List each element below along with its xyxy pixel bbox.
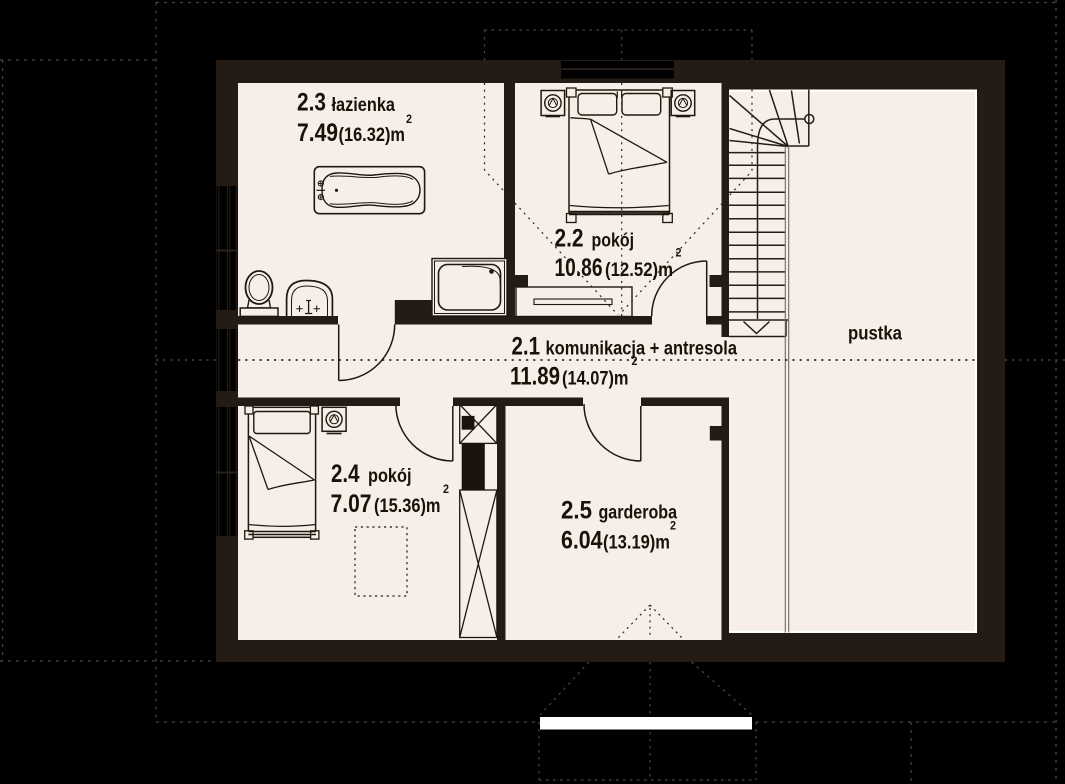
- svg-text:łazienka: łazienka: [332, 95, 396, 116]
- svg-text:2.4: 2.4: [331, 460, 360, 488]
- svg-text:pokój: pokój: [592, 231, 635, 252]
- svg-text:7.07: 7.07: [331, 490, 372, 518]
- svg-text:(15.36)m: (15.36)m: [374, 496, 441, 517]
- svg-text:2: 2: [632, 354, 638, 368]
- svg-text:2.1: 2.1: [512, 333, 541, 361]
- svg-text:7.49: 7.49: [297, 119, 338, 147]
- svg-text:2.2: 2.2: [555, 225, 584, 253]
- svg-text:2: 2: [676, 246, 682, 260]
- svg-text:11.89: 11.89: [510, 363, 560, 391]
- svg-text:komunikacja + antresola: komunikacja + antresola: [546, 339, 738, 360]
- svg-text:2: 2: [443, 482, 449, 496]
- svg-text:2.5: 2.5: [561, 497, 592, 525]
- svg-text:(14.07)m: (14.07)m: [562, 369, 629, 390]
- svg-text:pokój: pokój: [368, 466, 412, 487]
- svg-text:2: 2: [670, 519, 676, 533]
- svg-text:(16.32)m: (16.32)m: [339, 125, 406, 146]
- svg-text:10.86: 10.86: [555, 254, 603, 282]
- svg-text:(12.52)m: (12.52)m: [605, 260, 673, 281]
- svg-text:6.04: 6.04: [561, 527, 603, 555]
- svg-text:2: 2: [406, 112, 412, 126]
- svg-text:(13.19)m: (13.19)m: [603, 533, 670, 554]
- svg-text:pustka: pustka: [848, 324, 902, 345]
- svg-text:2.3: 2.3: [297, 89, 326, 117]
- svg-text:garderoba: garderoba: [599, 503, 678, 524]
